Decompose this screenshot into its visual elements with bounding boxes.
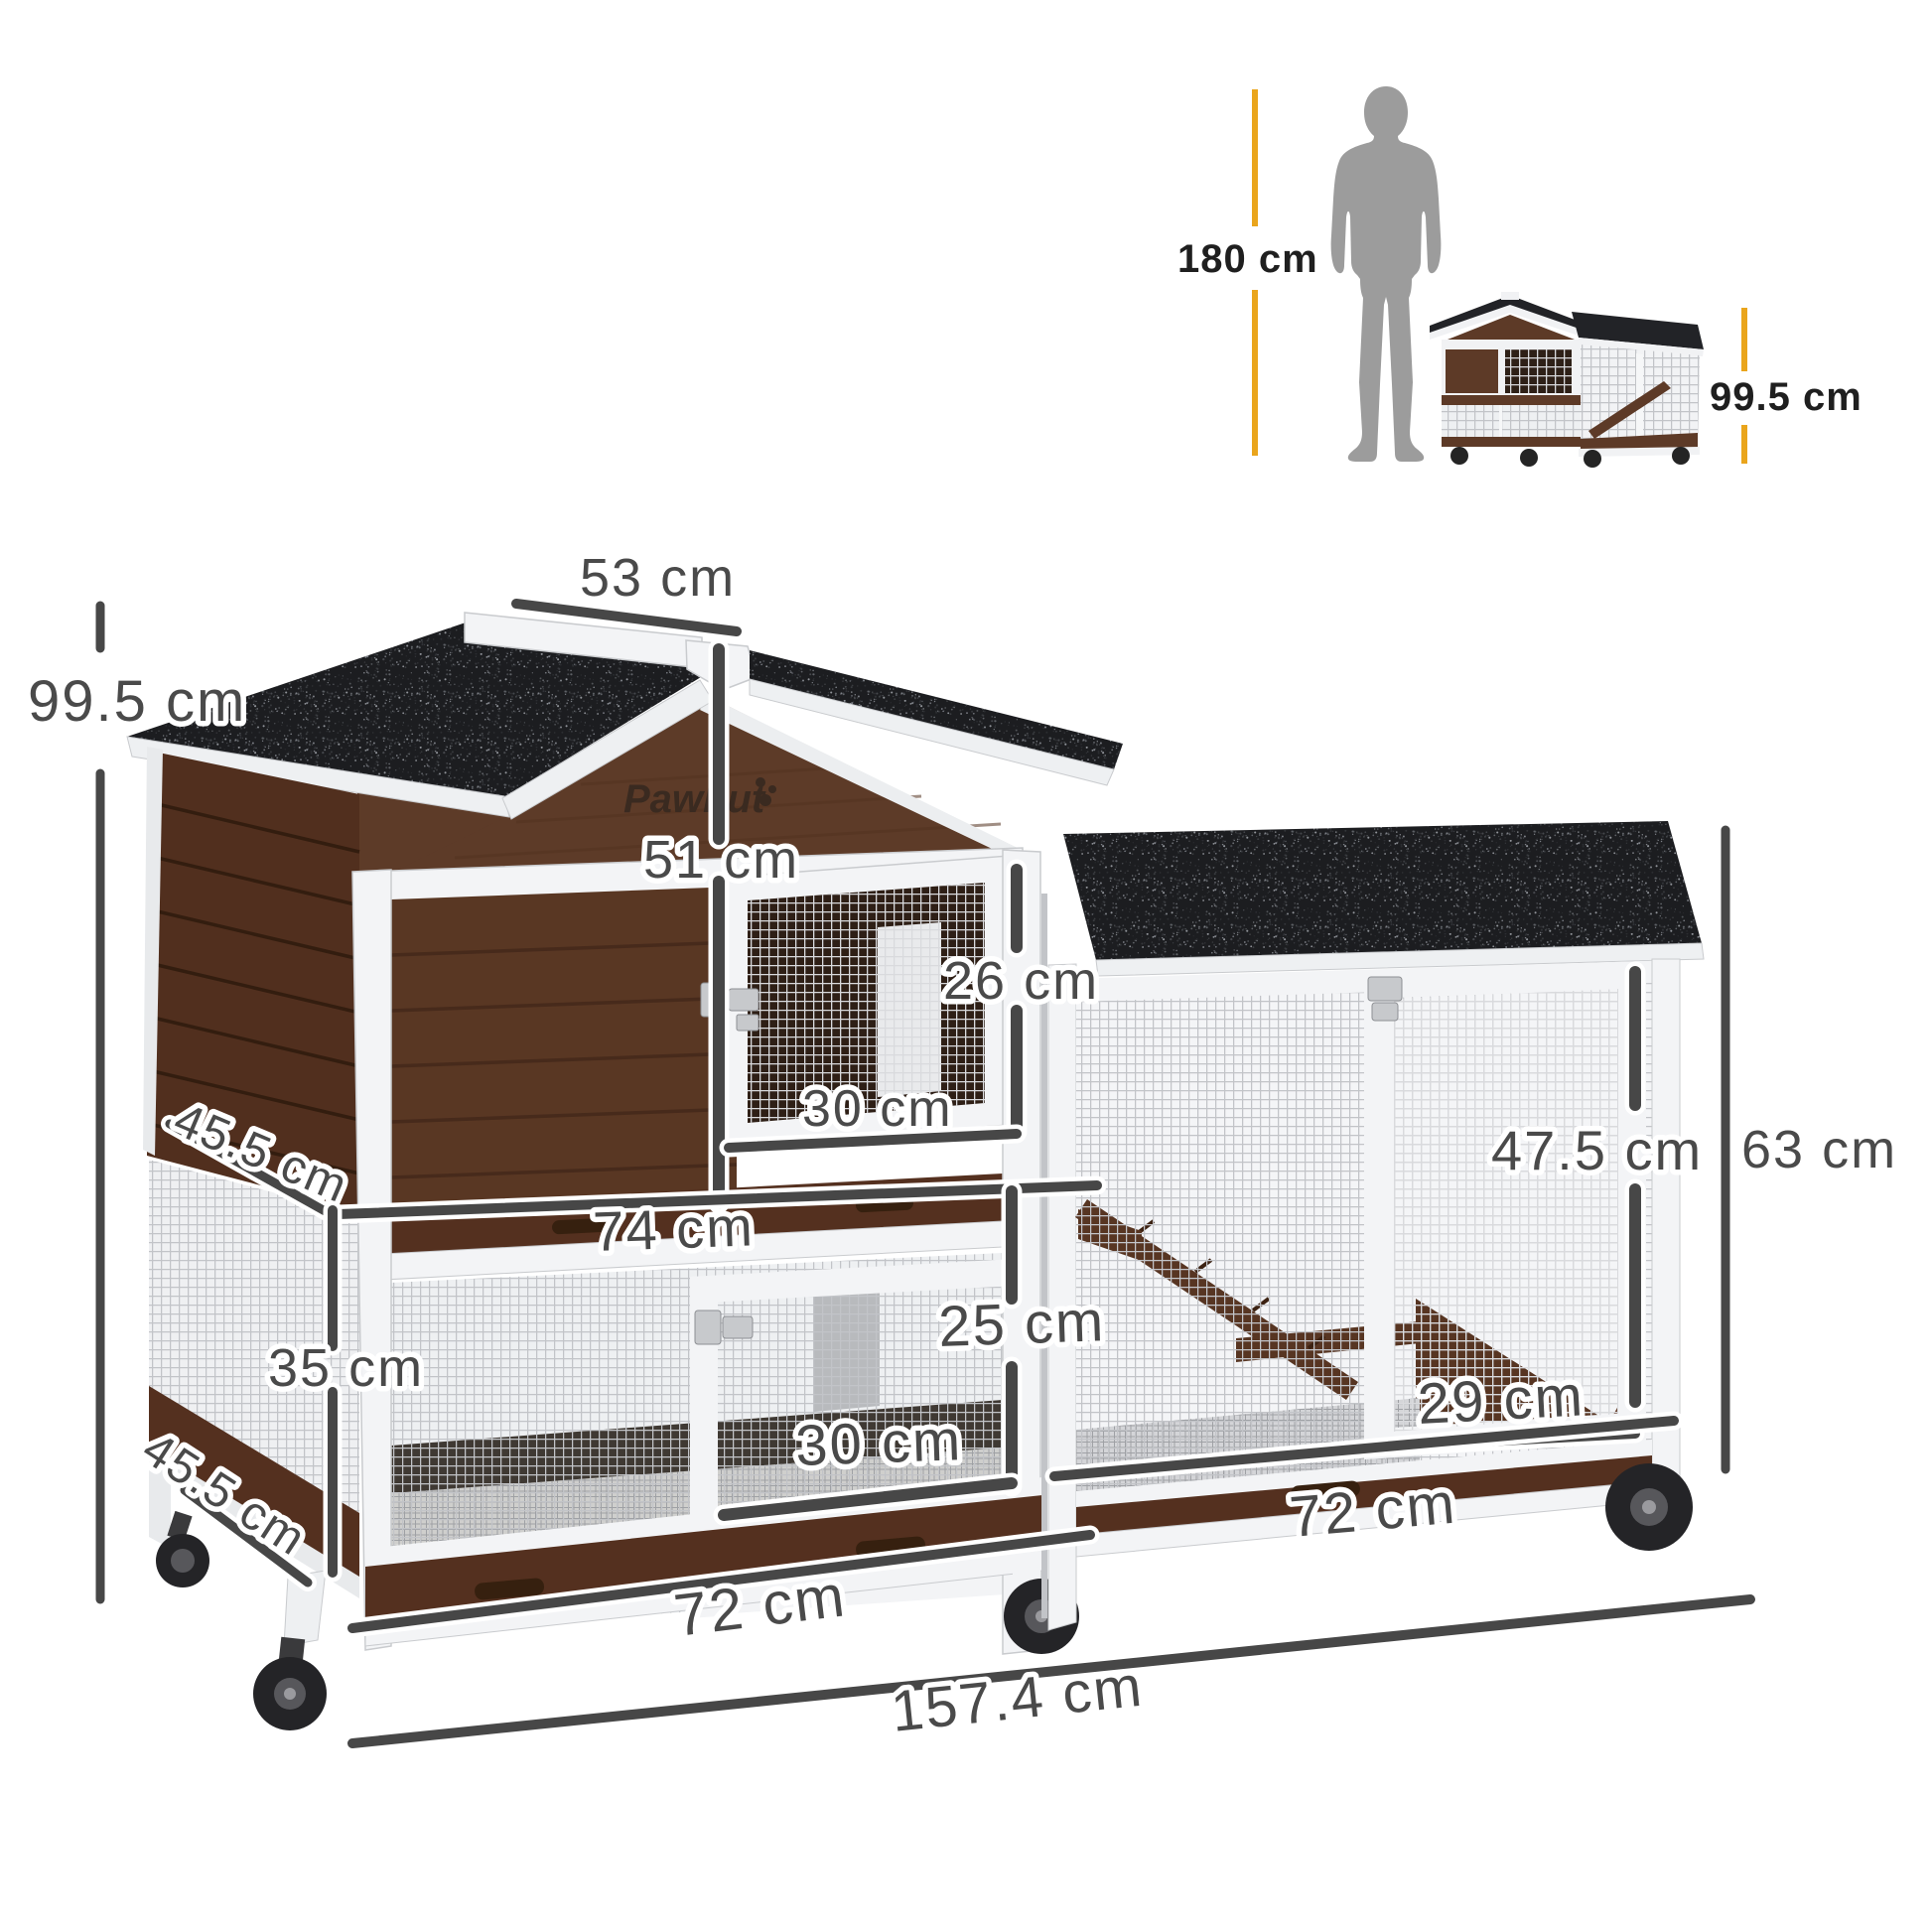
svg-text:30 cm: 30 cm <box>802 1080 953 1138</box>
svg-text:Pawhut: Pawhut <box>623 777 766 821</box>
svg-text:25 cm: 25 cm <box>937 1289 1106 1359</box>
svg-text:63 cm: 63 cm <box>1741 1120 1897 1179</box>
svg-text:26 cm: 26 cm <box>943 951 1099 1011</box>
svg-text:35 cm: 35 cm <box>268 1338 424 1398</box>
svg-text:99.5 cm: 99.5 cm <box>1710 375 1863 419</box>
svg-text:51 cm: 51 cm <box>643 830 799 890</box>
svg-text:30 cm: 30 cm <box>794 1408 963 1478</box>
svg-text:47.5 cm: 47.5 cm <box>1491 1119 1703 1181</box>
svg-text:99.5 cm: 99.5 cm <box>28 669 246 734</box>
svg-text:53 cm: 53 cm <box>580 548 736 608</box>
svg-text:180 cm: 180 cm <box>1177 237 1318 281</box>
svg-text:74 cm: 74 cm <box>592 1194 756 1263</box>
